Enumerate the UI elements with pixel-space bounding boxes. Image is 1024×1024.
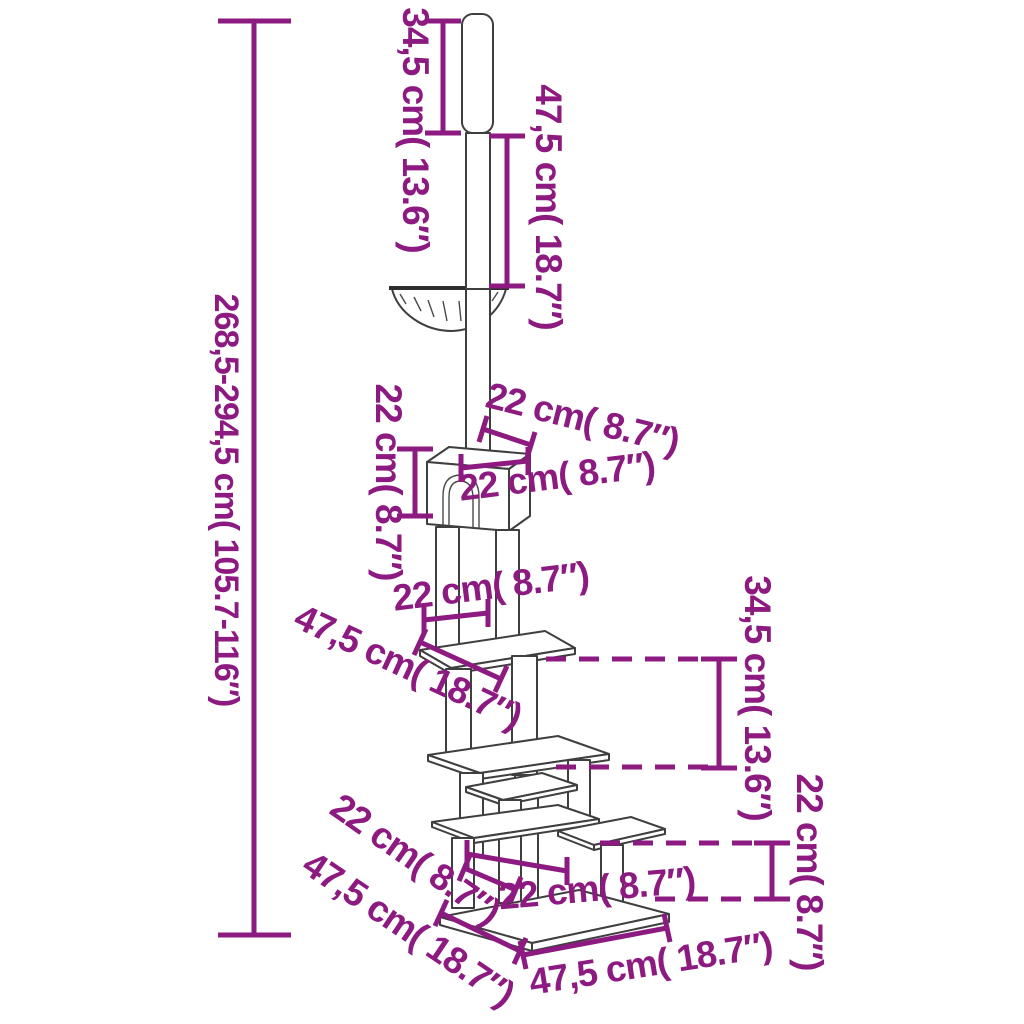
label-house-top-depth: 22 cm( 8.7″) bbox=[482, 375, 683, 462]
label-ceiling-tube-height: 34,5 cm( 13.6″) bbox=[395, 7, 436, 252]
label-lower-level-gap: 22 cm( 8.7″) bbox=[789, 774, 830, 971]
label-overall-height: 268,5-294,5 cm( 105.7-116″) bbox=[207, 294, 245, 707]
label-post-gap-below-house: 22 cm( 8.7″) bbox=[390, 554, 591, 619]
upper-pole bbox=[466, 133, 490, 289]
cat-tree-dimension-diagram: 268,5-294,5 cm( 105.7-116″) 34,5 cm( 13.… bbox=[0, 0, 1024, 1024]
label-platform-level-gap: 34,5 cm( 13.6″) bbox=[737, 575, 778, 820]
dimension-line-upper-pole bbox=[489, 136, 525, 286]
dimension-line-level-gap bbox=[701, 659, 737, 768]
dimension-line-lower-gap bbox=[754, 843, 790, 899]
ceiling-tube bbox=[462, 14, 493, 133]
diagram-svg: 268,5-294,5 cm( 105.7-116″) 34,5 cm( 13.… bbox=[0, 0, 1024, 1024]
label-upper-pole-height: 47,5 cm( 18.7″) bbox=[528, 84, 569, 329]
label-house-height: 22 cm( 8.7″) bbox=[368, 384, 409, 581]
